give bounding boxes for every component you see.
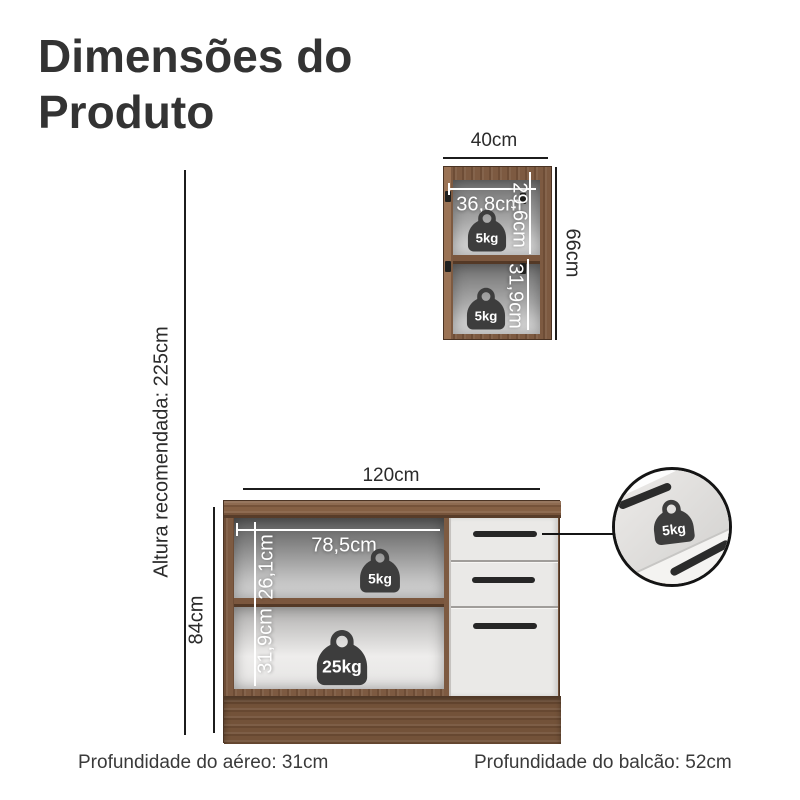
upper-cabinet-height-dimension-line — [555, 167, 557, 340]
svg-text:5kg: 5kg — [661, 521, 686, 539]
drawer-handle — [473, 531, 537, 537]
weight-icon: 5kg — [647, 496, 698, 547]
product-dimensions-diagram: Dimensões do Produto Altura recomendada:… — [0, 0, 800, 800]
weight-icon: 5kg — [464, 287, 508, 331]
page-title: Dimensões do Produto — [38, 28, 458, 140]
svg-text:25kg: 25kg — [322, 657, 362, 677]
max-load-badge: 5kg — [357, 548, 403, 594]
upper-inner-height-line-bottom — [527, 259, 529, 330]
base-inner-width-tick — [236, 523, 238, 536]
drawer-divider — [451, 606, 558, 608]
aereo-depth-label: Profundidade do aéreo: 31cm — [78, 752, 328, 774]
drawer-handle — [472, 577, 535, 583]
svg-text:5kg: 5kg — [368, 571, 392, 586]
recommended-height-label: Altura recomendada: 225cm — [151, 326, 174, 577]
drawer-panel — [449, 518, 558, 696]
base-cabinet-countertop — [224, 501, 561, 518]
upper-inner-height-top-label: 29,6cm — [508, 182, 531, 248]
base-inner-width-line — [237, 529, 440, 531]
max-load-badge: 5kg — [465, 209, 509, 253]
drawer-detail-circle: 5kg — [612, 467, 732, 587]
upper-cabinet-width-dimension-line — [443, 157, 548, 159]
base-inner-height-bottom-label: 31,9cm — [255, 608, 278, 674]
weight-icon: 25kg — [313, 629, 371, 687]
svg-text:5kg: 5kg — [475, 309, 498, 324]
base-cabinet-width-dimension-line — [243, 488, 540, 490]
base-cabinet-height-dimension-line — [213, 507, 215, 733]
upper-cabinet-height-label: 66cm — [561, 229, 584, 278]
max-load-badge: 5kg — [464, 287, 508, 331]
drawer-handle — [473, 623, 537, 629]
upper-cabinet-width-label: 40cm — [471, 130, 517, 152]
weight-icon: 5kg — [357, 548, 403, 594]
base-inner-height-top-label: 26,1cm — [256, 534, 279, 600]
weight-icon: 5kg — [465, 209, 509, 253]
balcao-depth-label: Profundidade do balcão: 52cm — [474, 752, 732, 774]
svg-text:5kg: 5kg — [476, 231, 499, 246]
drawer-detail-callout-line — [542, 533, 616, 535]
max-load-badge: 25kg — [313, 629, 371, 687]
recommended-height-dimension-line — [184, 170, 186, 735]
drawer-divider — [451, 560, 558, 562]
base-cabinet-height-label: 84cm — [186, 596, 209, 645]
base-cabinet-toekick — [224, 696, 561, 744]
hinge-icon — [445, 261, 451, 272]
upper-inner-width-tick — [448, 183, 450, 195]
max-load-badge: 5kg — [647, 496, 698, 547]
base-cabinet-width-label: 120cm — [362, 465, 419, 487]
